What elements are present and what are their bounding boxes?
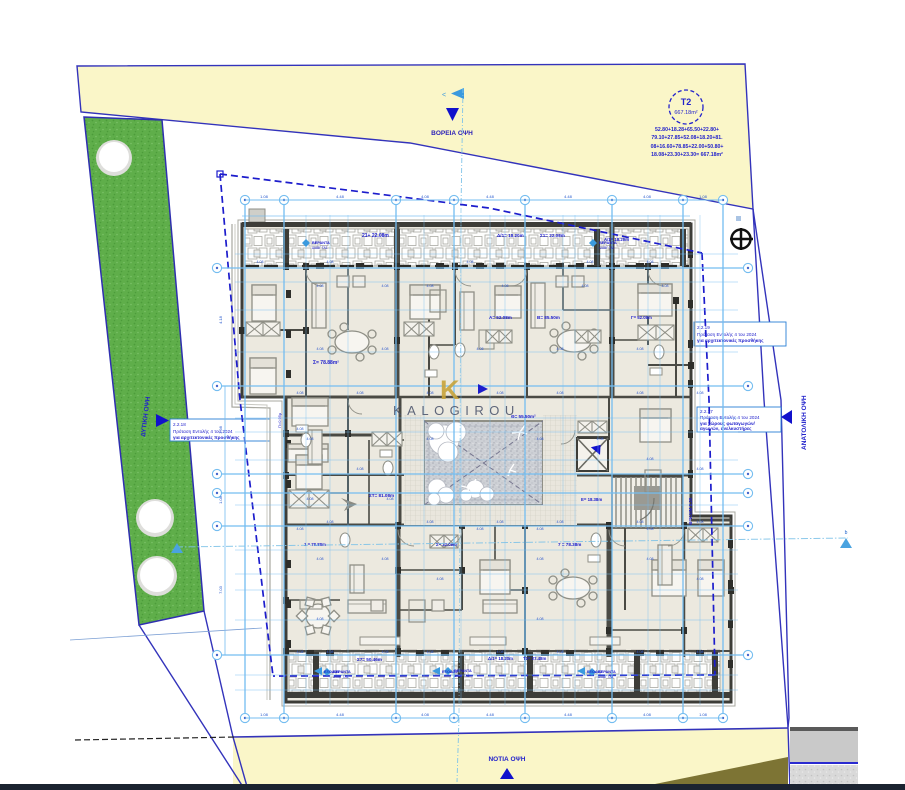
svg-text:4.08: 4.08 <box>597 437 604 441</box>
svg-text:4.08: 4.08 <box>357 391 364 395</box>
svg-text:1.08: 1.08 <box>218 495 223 504</box>
svg-text:1.98: 1.98 <box>218 425 223 434</box>
svg-text:4.08: 4.08 <box>297 427 304 431</box>
svg-text:4.08: 4.08 <box>307 437 314 441</box>
svg-text:ΔΙΑΒΓ ΤΑΣ: ΔΙΑΒΓ ΤΑΣ <box>333 675 349 679</box>
svg-text:4.08: 4.08 <box>297 650 304 654</box>
svg-text:4.08: 4.08 <box>637 347 644 351</box>
svg-text:4.08: 4.08 <box>582 284 589 288</box>
svg-text:Δ/1= 18.20m: Δ/1= 18.20m <box>488 656 513 661</box>
svg-text:4.08: 4.08 <box>497 391 504 395</box>
svg-text:4.08: 4.08 <box>643 712 652 717</box>
svg-text:ΒΟΡΕΙΑ ΟΨΗ: ΒΟΡΕΙΑ ΟΨΗ <box>431 130 473 137</box>
svg-text:4.08: 4.08 <box>662 284 669 288</box>
svg-text:4.08: 4.08 <box>647 557 654 561</box>
svg-text:ΒΕΡΑΝΤΑ: ΒΕΡΑΝΤΑ <box>312 241 330 245</box>
svg-text:1.08: 1.08 <box>699 194 708 199</box>
svg-text:4.08: 4.08 <box>637 391 644 395</box>
svg-text:4.48: 4.48 <box>564 712 573 717</box>
svg-text:4.08: 4.08 <box>697 520 704 524</box>
svg-text:ΕΞΟΔΟΣ: ΕΞΟΔΟΣ <box>587 670 603 674</box>
svg-text:4.08: 4.08 <box>697 467 704 471</box>
svg-text:4.08: 4.08 <box>327 260 334 264</box>
svg-text:4.08: 4.08 <box>327 650 334 654</box>
svg-text:4.08: 4.08 <box>477 347 484 351</box>
svg-text:4.08: 4.08 <box>427 520 434 524</box>
svg-text:4.08: 4.08 <box>357 467 364 471</box>
svg-text:ΕΞΟΔΟΣ: ΕΞΟΔΟΣ <box>324 670 340 674</box>
svg-text:7 = 78.38m: 7 = 78.38m <box>558 542 581 547</box>
svg-text:4.08: 4.08 <box>537 617 544 621</box>
svg-text:4.48: 4.48 <box>336 712 345 717</box>
svg-text:4.08: 4.08 <box>297 391 304 395</box>
svg-text:4.08: 4.08 <box>557 650 564 654</box>
svg-text:ΔΙΑΒΓ ΤΑΣ: ΔΙΑΒΓ ΤΑΣ <box>599 246 615 250</box>
svg-text:4.08: 4.08 <box>427 284 434 288</box>
svg-text:667.18m²: 667.18m² <box>674 110 697 116</box>
svg-text:4.48: 4.48 <box>486 712 495 717</box>
svg-text:4.08: 4.08 <box>697 391 704 395</box>
svg-text:Π=0.95μ: Π=0.95μ <box>277 412 282 428</box>
svg-text:4.48: 4.48 <box>336 194 345 199</box>
svg-text:Β= 85.50m: Β= 85.50m <box>537 315 560 320</box>
svg-text:Σ= 32.08m: Σ= 32.08m <box>436 542 457 547</box>
svg-text:ΔΙΑΒΓ ΤΑΣ: ΔΙΑΒΓ ΤΑΣ <box>598 675 614 679</box>
svg-text:Σ7= 50.46m: Σ7= 50.46m <box>357 657 382 662</box>
svg-text:4.08: 4.08 <box>307 497 314 501</box>
svg-text:4.08: 4.08 <box>557 391 564 395</box>
svg-text:Σ= 78.88m²: Σ= 78.88m² <box>313 360 339 366</box>
svg-text:4.08: 4.08 <box>421 712 430 717</box>
svg-text:4.08: 4.08 <box>297 527 304 531</box>
svg-text:4.08: 4.08 <box>382 557 389 561</box>
svg-text:ΑΝΑΤΟΛΙΚΗ ΟΨΗ: ΑΝΑΤΟΛΙΚΗ ΟΨΗ <box>801 395 808 450</box>
svg-text:1.08: 1.08 <box>260 194 269 199</box>
svg-text:4.08: 4.08 <box>421 194 430 199</box>
svg-text:4.08: 4.08 <box>317 347 324 351</box>
svg-text:4.08: 4.08 <box>327 520 334 524</box>
svg-text:4.08: 4.08 <box>317 617 324 621</box>
svg-text:18.08+23.30+23.30= 667.18m²: 18.08+23.30+23.30= 667.18m² <box>651 152 723 158</box>
svg-text:4.08: 4.08 <box>317 284 324 288</box>
svg-text:4.08: 4.08 <box>427 650 434 654</box>
svg-text:4.08: 4.08 <box>467 260 474 264</box>
svg-text:4.08: 4.08 <box>382 284 389 288</box>
svg-text:4.08: 4.08 <box>437 577 444 581</box>
svg-text:2.2.18: 2.2.18 <box>173 422 186 427</box>
svg-text:4.08: 4.08 <box>557 520 564 524</box>
svg-text:4.08: 4.08 <box>477 527 484 531</box>
svg-text:Δ/1= 18.20m: Δ/1= 18.20m <box>497 233 524 238</box>
svg-text:4.08: 4.08 <box>637 650 644 654</box>
svg-text:1.08: 1.08 <box>260 712 269 717</box>
svg-text:ΣΤ= 81.08m: ΣΤ= 81.08m <box>369 493 394 498</box>
svg-text:Θ=ΚΛΙΜ 2.20: Θ=ΚΛΙΜ 2.20 <box>688 497 693 525</box>
svg-text:2.2.19: 2.2.19 <box>697 325 710 330</box>
svg-text:1.08: 1.08 <box>699 712 708 717</box>
svg-text:4.08: 4.08 <box>317 557 324 561</box>
svg-text:4.08: 4.08 <box>557 347 564 351</box>
svg-text:4.08: 4.08 <box>647 457 654 461</box>
svg-text:Γ= 52.08m: Γ= 52.08m <box>631 315 652 320</box>
svg-text:2.2.17: 2.2.17 <box>700 409 713 414</box>
svg-text:4.08: 4.08 <box>427 391 434 395</box>
svg-text:ΒΕΡΑΝΤΑ: ΒΕΡΑΝΤΑ <box>599 241 617 245</box>
svg-text:Σ1= 22.08m: Σ1= 22.08m <box>540 233 565 238</box>
svg-text:4.08: 4.08 <box>427 437 434 441</box>
svg-text:4.08: 4.08 <box>637 520 644 524</box>
svg-text:7.03: 7.03 <box>218 585 223 594</box>
svg-text:52.80+18.28+65.50+22.80+: 52.80+18.28+65.50+22.80+ <box>655 127 719 133</box>
svg-text:Α= 52.08m: Α= 52.08m <box>489 315 512 320</box>
svg-text:ΔΙΑΒΓ ΤΑΣ: ΔΙΑΒΓ ΤΑΣ <box>312 246 328 250</box>
svg-text:4.08: 4.08 <box>537 557 544 561</box>
svg-text:4.48: 4.48 <box>564 194 573 199</box>
svg-text:Τ1= 27.48m: Τ1= 27.48m <box>523 656 546 661</box>
svg-text:21+ 22.08m: 21+ 22.08m <box>362 233 389 239</box>
svg-text:T2: T2 <box>681 97 692 107</box>
svg-text:<: < <box>442 92 446 99</box>
svg-text:4.18: 4.18 <box>218 315 223 324</box>
svg-text:4.08: 4.08 <box>697 650 704 654</box>
svg-text:79.10+27.85+52.08+18.20+81.: 79.10+27.85+52.08+18.20+81. <box>651 135 723 141</box>
svg-text:4.48: 4.48 <box>486 194 495 199</box>
svg-text:4.08: 4.08 <box>497 520 504 524</box>
svg-text:Ε= 18.38m: Ε= 18.38m <box>581 497 602 502</box>
svg-text:1 = 78.88m: 1 = 78.88m <box>304 542 326 547</box>
svg-text:4.08: 4.08 <box>502 284 509 288</box>
svg-text:08+16.60+78.85+22.00+50.80+: 08+16.60+78.85+22.00+50.80+ <box>651 144 724 150</box>
svg-text:4.08: 4.08 <box>537 527 544 531</box>
svg-text:4.08: 4.08 <box>697 577 704 581</box>
svg-text:ΕΞΟΔΟΣ: ΕΞΟΔΟΣ <box>442 670 458 674</box>
svg-text:b: b <box>845 530 848 536</box>
svg-text:ΔΙΑΒΓ ΤΑΣ: ΔΙΑΒΓ ΤΑΣ <box>454 674 470 678</box>
svg-text:4.08: 4.08 <box>647 260 654 264</box>
svg-text:4.08: 4.08 <box>382 347 389 351</box>
svg-text:4.08: 4.08 <box>382 650 389 654</box>
svg-text:K: K <box>440 375 460 405</box>
svg-text:4.08: 4.08 <box>643 194 652 199</box>
svg-text:Πρόταση Εντολής 4 του 2024: Πρόταση Εντολής 4 του 2024 <box>173 428 233 434</box>
svg-text:4.08: 4.08 <box>257 260 264 264</box>
svg-text:4.08: 4.08 <box>647 527 654 531</box>
svg-text:KALOGIROU: KALOGIROU <box>393 403 520 418</box>
svg-text:4.08: 4.08 <box>537 437 544 441</box>
svg-text:4.08: 4.08 <box>497 650 504 654</box>
svg-text:ΝΟΤΙΑ ΟΨΗ: ΝΟΤΙΑ ΟΨΗ <box>488 756 525 763</box>
svg-text:4.08: 4.08 <box>587 260 594 264</box>
